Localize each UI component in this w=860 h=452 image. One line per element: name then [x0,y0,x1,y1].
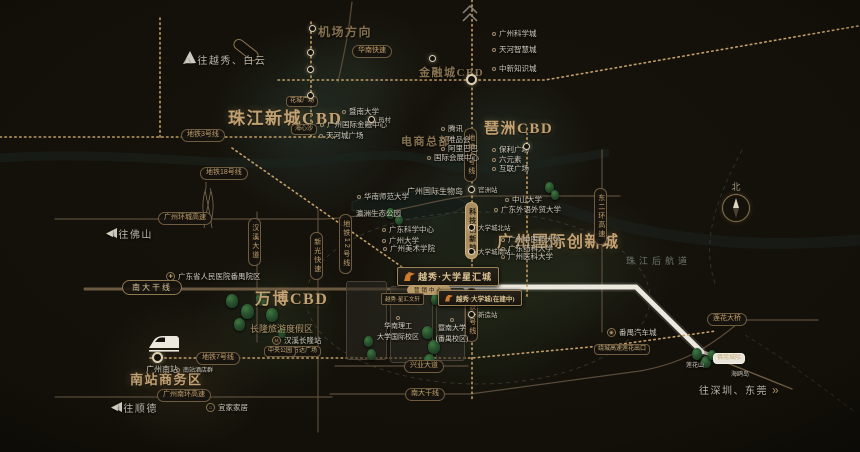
intl-convention-center-dot-icon [427,156,431,160]
metro-line7: 地铁7号线 [196,352,240,365]
gz-south-railway-station: 广州南站 [146,364,178,375]
lianhua-bridge: 莲花大桥 [707,313,747,326]
gd-science-center: 广东科学中心 [382,224,434,235]
station-line3-b [307,66,314,73]
station-xinzao [468,311,475,318]
sino-sg-knowledge-city-label: 中新知识城 [499,63,537,74]
foguan-intercity: 佛莞城际 [713,353,745,364]
metro-line12: 地铁12号线 [339,214,352,274]
sun-yat-sen-university-dot-icon [505,198,509,202]
internet-plaza-dot-icon [492,167,496,171]
gdufs: 广东外语外贸大学 [494,204,561,215]
compass-north-label: 北 [719,180,753,193]
yingzhou-eco-park: 瀛洲生态公园 [356,208,401,219]
xinguang-expressway: 新光快速 [310,232,323,280]
gz-science-city-label: 广州科学城 [499,28,537,39]
south-china-normal-univ: 华南师范大学 [357,191,409,202]
changlong-resort-label: 长隆旅游度假区 [250,322,313,335]
gd-people-hospital-panyu: ✚广东省人民医院番禺院区 [166,271,261,282]
gd-science-center-dot-icon [382,228,386,232]
guangzhou-ifc: 广州国际金融中心 [320,119,387,130]
central-park-tag: 中央公园 [264,346,296,357]
jinan-univ-panyu-campus-line2: (番禺校区) [424,335,480,346]
pearl-river-back-channel: 珠江后航道 [626,254,691,267]
gd-people-hospital-panyu-label: 广东省人民医院番禺院区 [178,271,261,282]
hanxi-avenue: 汉溪大道 [248,218,261,266]
gdufs-dot-icon [494,208,498,212]
station-hedc-north-label: 大学城北站 [478,222,511,232]
to-yuexiu-baiyun: ▲往越秀、白云 [183,52,266,67]
to-yuexiu-baiyun-label: 往越秀、白云 [197,52,266,67]
scut-international-campus-dot-icon [396,316,400,320]
scut-international-campus-line1: 华南理工 [370,322,426,333]
station-financial-interchange [466,74,477,85]
nanda-trunk-west: 南大干线 [122,280,182,295]
station-hedc-south [468,248,475,255]
teemall-plaza-label: 天河城广场 [326,130,364,141]
haixinsha-tag: 海心沙 [291,124,317,135]
station-guanzhou-label: 官洲站 [478,184,498,194]
metro-line18: 地铁18号线 [200,167,248,180]
project-phase2-name: 越秀·大学城(在建中) [456,293,515,303]
hanxi-changlong-station-label: 汉溪长隆站 [284,335,322,346]
project-side-tag: 越秀·星汇文轩 [381,293,424,305]
haiou-island-label: 海鸥岛 [731,369,749,378]
sino-sg-knowledge-city-dot-icon [492,67,496,71]
gz-medical-university-label: 广州医科大学 [508,251,553,262]
project-logo-icon-small [445,295,453,302]
lianhua-mountain-label: 莲花山 [686,360,704,369]
to-yuexiu-baiyun-arrow-icon: ▲ [183,55,193,65]
to-shunde-label: 往顺德 [123,400,158,415]
east-2nd-ring-expressway: 东二环高速 [594,188,607,245]
gz-science-city-dot-icon [492,32,496,36]
intl-convention-center-label: 国际会展中心 [434,152,479,163]
ikea-home-icon: ⌂ [206,403,215,412]
six-elements-dot-icon [492,158,496,162]
compass-needle-icon [733,198,739,208]
jinan-univ-panyu-campus: 暨南大学(番禺校区) [424,318,480,345]
panyu-auto-city: ◉番禺汽车城 [607,327,657,338]
project-plaque-main: 越秀·大学星汇城 [397,267,499,286]
yingzhou-eco-park-label: 瀛洲生态公园 [356,208,401,219]
compass: 北 [719,180,753,222]
alibaba-dot-icon [441,147,445,151]
raocheng-lianhua-exit: 绕城高速莲花出口 [594,344,650,355]
panyu-auto-city-label: 番禺汽车城 [619,327,657,338]
train-icon [146,333,182,355]
teemall-plaza-dot-icon [319,134,323,138]
gd-people-hospital-panyu-cross-icon: ✚ [166,272,175,281]
ring-expressway: 广州环城高速 [158,212,212,225]
project-name: 越秀·大学星汇城 [418,270,492,283]
hanxi-changlong-station: Ⓜ汉溪长隆站 [272,335,322,346]
jinan-university: 暨南大学 [342,106,379,117]
tianhe-smart-city-dot-icon [492,48,496,52]
haiou-island: 海鸥岛 [731,369,749,378]
gdufs-label: 广东外语外贸大学 [501,204,561,215]
station-line3-a [307,49,314,56]
jinan-univ-panyu-campus-line1: 暨南大学 [424,324,480,335]
ikea: ⌂宜家家居 [206,402,248,413]
tencent-dot-icon [441,127,445,131]
gz-south-railway-station-label: 广州南站 [146,364,178,375]
sino-sg-knowledge-city: 中新知识城 [492,63,537,74]
station-guanzhou [468,186,475,193]
gz-academy-fine-arts-label: 广州美术学院 [390,243,435,254]
station-airport-line [309,25,316,32]
gz-intl-bio-island-label: 广州国际生物岛 [407,186,463,197]
intl-convention-center: 国际会展中心 [427,152,479,163]
station-pazhou [523,143,530,150]
scut-international-campus-line2: 大学国际校区 [370,333,426,344]
to-foshan-label: 往佛山 [118,226,153,241]
gd-science-center-label: 广东科学中心 [389,224,434,235]
station-line3-c [307,92,314,99]
vipshop-dot-icon [441,138,445,142]
tianhe-smart-city-label: 天河智慧城 [499,44,537,55]
jinan-university-dot-icon [342,110,346,114]
tencent-label: 腾讯 [448,123,463,134]
panyu-auto-city-car-icon: ◉ [607,328,616,337]
tencent: 腾讯 [441,123,463,134]
project-logo-icon [404,272,415,281]
guangzhou-university-dot-icon [382,239,386,243]
map-labels: 珠江新城CBD琶洲CBD金融城CBD万博CBD广州国际创新城南站商务区电商总部机… [0,0,860,452]
station-xinzao-label: 新造站 [478,309,498,319]
metro-line3: 地铁3号线 [181,129,225,142]
internet-plaza: 互联广场 [492,163,529,174]
jinan-univ-panyu-campus-dot-icon [450,318,454,322]
south-china-normal-univ-dot-icon [357,195,361,199]
south-station-hotels: 南站酒店群 [176,365,213,374]
huanan-expressway: 华南快速 [352,45,392,58]
compass-circle-icon [722,194,750,222]
to-foshan: ◀往佛山 [106,226,153,241]
gz-science-city: 广州科学城 [492,28,537,39]
gz-academy-fine-arts-dot-icon [383,247,387,251]
to-shenzhen-dongguan: 往深圳、东莞» [699,382,780,397]
tianhe-smart-city: 天河智慧城 [492,44,537,55]
airport-direction: 机场方向 [318,23,372,40]
to-shunde: ◀往顺德 [111,400,158,415]
gz-univ-chinese-medicine-dot-icon [501,238,505,242]
to-shenzhen-dongguan-label: 往深圳、东莞 [699,382,768,397]
station-hedc-south-label: 大学城南站 [478,246,511,256]
map-canvas: 珠江新城CBD琶洲CBD金融城CBD万博CBD广州国际创新城南站商务区电商总部机… [0,0,860,452]
internet-plaza-label: 互联广场 [499,163,529,174]
gz-intl-bio-island: 广州国际生物岛 [407,186,463,197]
jinan-university-label: 暨南大学 [349,106,379,117]
station-hedc-north [468,224,475,231]
guangzhou-ifc-dot-icon [320,123,324,127]
nanda-trunk-east: 南大干线 [405,388,445,401]
station-yuancun [368,116,375,123]
pazhou-cbd: 琶洲CBD [484,117,553,138]
xingye-avenue: 兴业大道 [404,360,444,373]
to-foshan-arrow-icon: ◀ [106,228,114,239]
south-ring-expressway: 广州南环高速 [157,389,211,402]
ikea-label: 宜家家居 [218,402,248,413]
south-china-normal-univ-label: 华南师范大学 [364,191,409,202]
hanxi-changlong-station-metro-icon: Ⓜ [272,336,281,345]
teemall-plaza: 天河城广场 [319,130,364,141]
changlong-resort: 长隆旅游度假区 [250,322,313,335]
lianhua-mountain: 莲花山 [686,360,704,369]
gz-academy-fine-arts: 广州美术学院 [383,243,435,254]
wanbo-cbd: 万博CBD [255,285,328,309]
station-yuancun-label: 员村 [378,114,391,124]
scut-international-campus: 华南理工大学国际校区 [370,316,426,343]
south-station-hotels-label: 南站酒店群 [183,365,213,374]
project-plaque-phase2: 越秀·大学城(在建中) [438,290,522,306]
station-financial-badge [429,55,436,62]
to-shenzhen-dongguan-arrow-icon: » [772,383,780,397]
to-shunde-arrow-icon: ◀ [111,402,119,413]
poly-plaza-dot-icon [492,148,496,152]
